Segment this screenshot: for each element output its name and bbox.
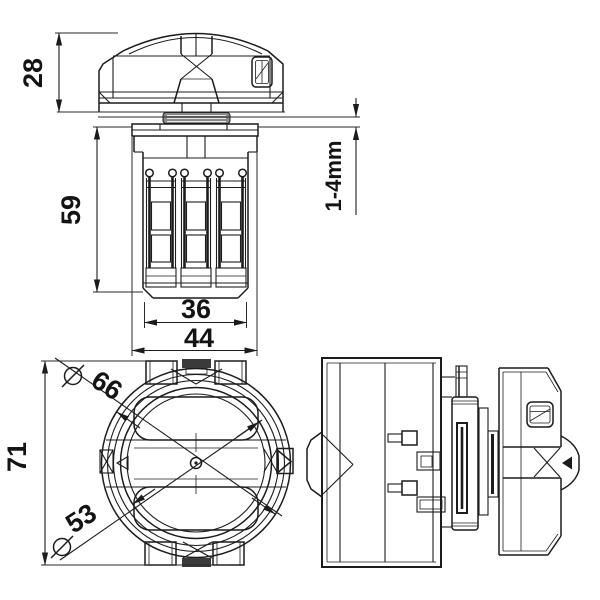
terminal-block-1	[146, 169, 177, 287]
top-view	[100, 359, 293, 567]
knob-label-window-side	[527, 402, 553, 427]
threaded-collar	[163, 113, 230, 124]
dim-terminal-width: 36	[181, 294, 211, 324]
fixing-screw-side	[456, 366, 467, 397]
mounting-plate-side	[452, 397, 498, 530]
knob-label-window-front	[252, 57, 272, 87]
dim-body-height: 59	[56, 195, 86, 225]
dim-panel-thickness: 1-4mm	[321, 141, 346, 212]
switch-body-front	[134, 136, 257, 298]
technical-drawing: 28 59 36 44 1-4mm 71 66 53	[0, 0, 600, 600]
dim-line-66	[55, 358, 282, 516]
hex-boss	[307, 432, 322, 497]
dim-knob-height: 28	[18, 58, 48, 88]
terminal-pin-upper	[388, 431, 417, 445]
right-rim-pointer	[264, 449, 293, 474]
dim-line-53	[60, 420, 262, 560]
mounting-flange-front	[132, 124, 258, 136]
switch-body-side	[307, 358, 455, 567]
dim-inner-diameter: 53	[60, 498, 102, 540]
dim-body-width: 44	[184, 323, 214, 353]
knob-front	[99, 34, 283, 113]
dim-overall-size: 71	[2, 442, 32, 472]
drawing-svg: 28 59 36 44 1-4mm 71 66 53	[0, 0, 600, 600]
mounting-clip-upper	[417, 452, 440, 470]
terminal-block-3	[216, 169, 247, 287]
front-view	[99, 34, 283, 299]
grip-pointer-icon	[562, 457, 572, 470]
terminal-pin-lower	[388, 481, 417, 495]
terminal-block-2	[181, 169, 212, 287]
diameter-symbol-icon	[51, 536, 73, 558]
side-view	[307, 358, 579, 567]
dim-front-diameter: 66	[86, 365, 128, 407]
knob-side	[499, 368, 579, 555]
